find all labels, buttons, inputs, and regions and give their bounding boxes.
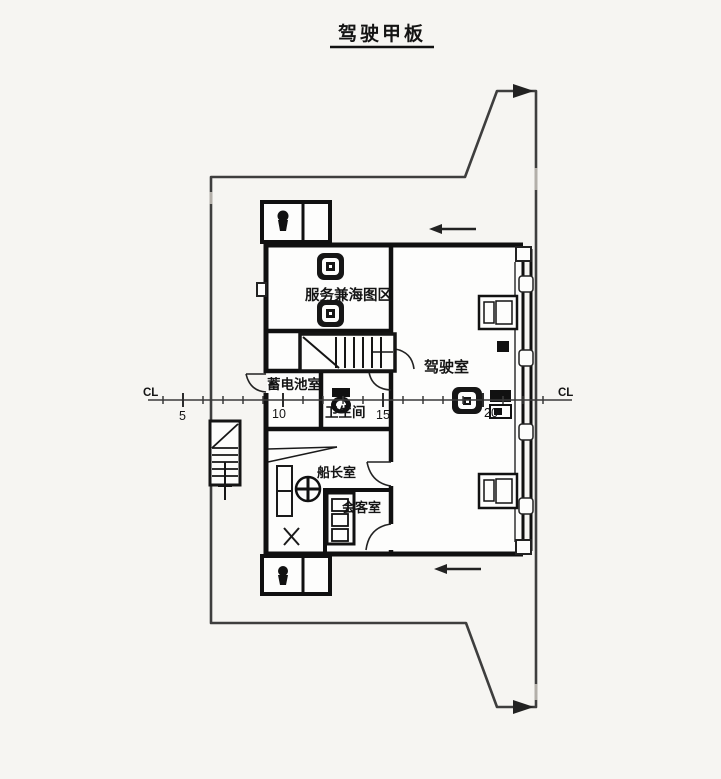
chart-console-icon-bottom [317, 300, 344, 327]
window-mullion-icon [519, 350, 533, 366]
room-label-meeting-room: 会客室 [342, 500, 381, 515]
round-table-icon [296, 477, 320, 501]
pilot-console-icon-bottom [479, 474, 517, 508]
deck-plan-drawing: 驾驶甲板 [0, 0, 721, 779]
centerline-label-left: CL [143, 387, 158, 399]
interior-stairs-icon [300, 334, 395, 371]
chart-console-icon-top [317, 253, 344, 280]
panel-block-icon [497, 341, 509, 352]
station-number-20: 20 [484, 406, 498, 420]
station-number-10: 10 [272, 407, 286, 421]
window-mullion-icon [519, 498, 533, 514]
centerline-label-right: CL [558, 387, 573, 399]
bottom-locker-box [262, 556, 330, 594]
keyhole-icon-bottom [278, 566, 288, 585]
station-number-15: 15 [376, 408, 390, 422]
drawing-title: 驾驶甲板 [338, 22, 426, 45]
room-label-bathroom: 卫生间 [325, 404, 366, 420]
window-mullion-icon [519, 424, 533, 440]
room-label-battery-room: 蓄电池室 [267, 376, 321, 392]
wall-vent-nub [257, 283, 266, 296]
room-label-wheelhouse: 驾驶室 [424, 358, 469, 376]
pilot-console-icon-top [479, 296, 517, 329]
top-locker-box [262, 202, 330, 242]
station-number-5: 5 [179, 409, 186, 423]
room-label-chart-area: 服务兼海图区 [305, 286, 392, 304]
room-label-captain-room: 船长室 [317, 465, 356, 480]
window-mullion-icon [519, 276, 533, 292]
